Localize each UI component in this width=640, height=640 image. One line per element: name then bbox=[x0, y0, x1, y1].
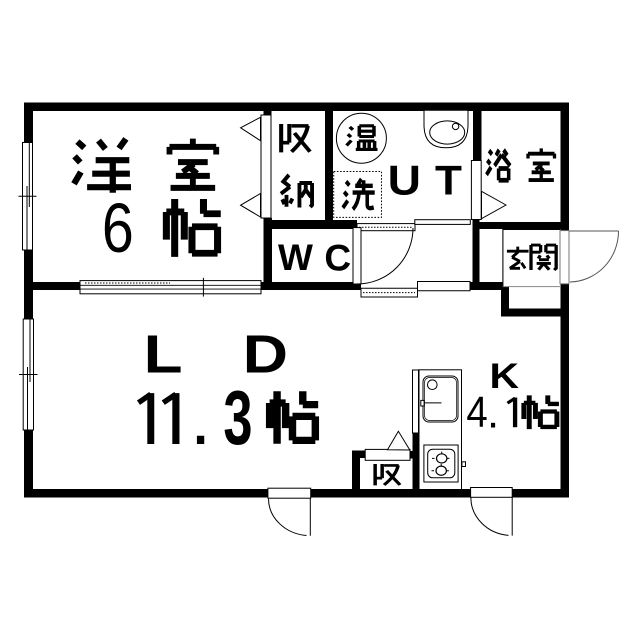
svg-text:C: C bbox=[324, 237, 351, 278]
svg-text:U: U bbox=[388, 157, 421, 204]
svg-text:L: L bbox=[144, 324, 183, 384]
svg-text:.: . bbox=[190, 375, 211, 461]
svg-text:4: 4 bbox=[466, 388, 487, 437]
svg-text:T: T bbox=[435, 157, 462, 204]
svg-text:.: . bbox=[487, 390, 499, 438]
svg-text:6: 6 bbox=[102, 189, 134, 268]
svg-text:W: W bbox=[278, 237, 313, 278]
svg-text:3: 3 bbox=[223, 374, 252, 461]
